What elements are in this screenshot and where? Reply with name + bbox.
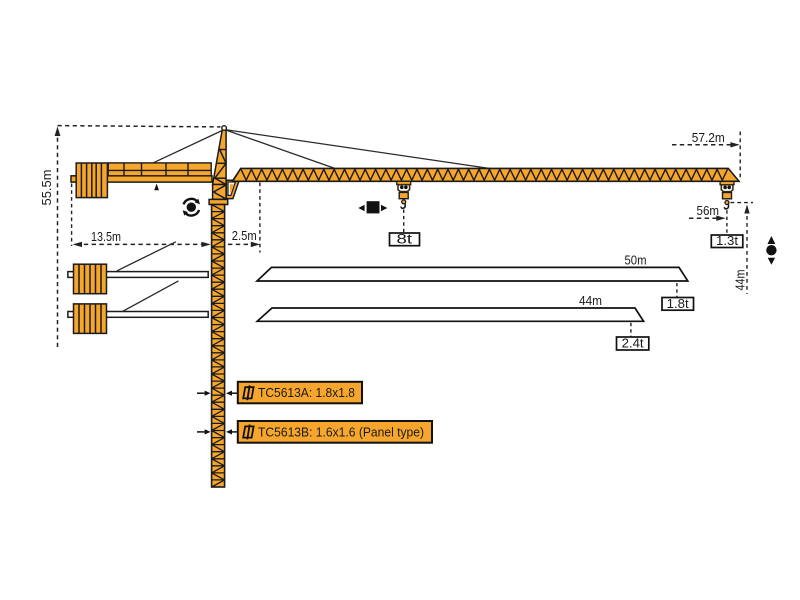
svg-text:13.5m: 13.5m <box>91 229 121 244</box>
svg-text:8t: 8t <box>397 232 413 247</box>
svg-text:2.5m: 2.5m <box>232 228 257 243</box>
svg-text:44m: 44m <box>579 293 602 308</box>
svg-text:50m: 50m <box>625 253 647 268</box>
svg-text:TC5613A: 1.8x1.8: TC5613A: 1.8x1.8 <box>258 386 355 400</box>
svg-text:55.5m: 55.5m <box>39 170 54 206</box>
svg-text:57.2m: 57.2m <box>692 130 725 145</box>
svg-text:1.3t: 1.3t <box>716 233 738 248</box>
svg-text:TC5613B: 1.6x1.6 (Panel type: TC5613B: 1.6x1.6 (Panel type) <box>258 426 424 440</box>
svg-text:44m: 44m <box>733 270 748 291</box>
svg-text:1.8t: 1.8t <box>667 296 689 311</box>
svg-text:56m: 56m <box>697 203 720 218</box>
svg-text:2.4t: 2.4t <box>622 336 644 351</box>
